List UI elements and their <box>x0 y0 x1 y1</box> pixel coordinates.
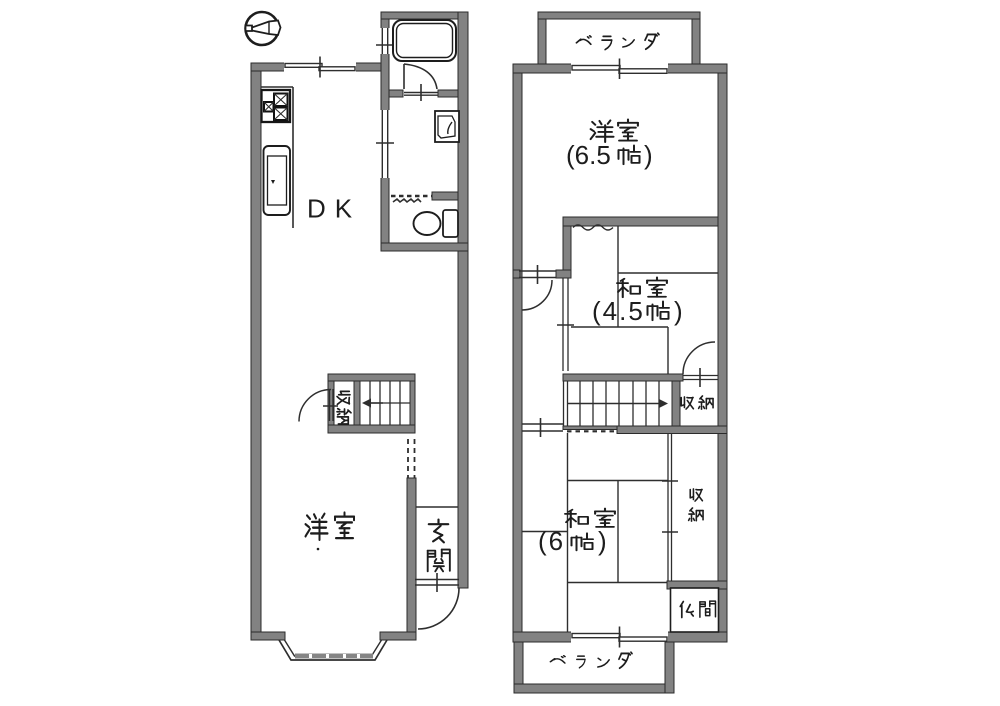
svg-text:(4.5: (4.5 <box>592 296 645 326</box>
svg-text:(6.5: (6.5 <box>566 140 611 170</box>
svg-text:(6: (6 <box>538 526 565 556</box>
svg-text:): ) <box>644 140 653 170</box>
svg-text:): ) <box>598 526 607 556</box>
svg-text:DK: DK <box>307 194 361 224</box>
svg-text:): ) <box>674 296 683 326</box>
